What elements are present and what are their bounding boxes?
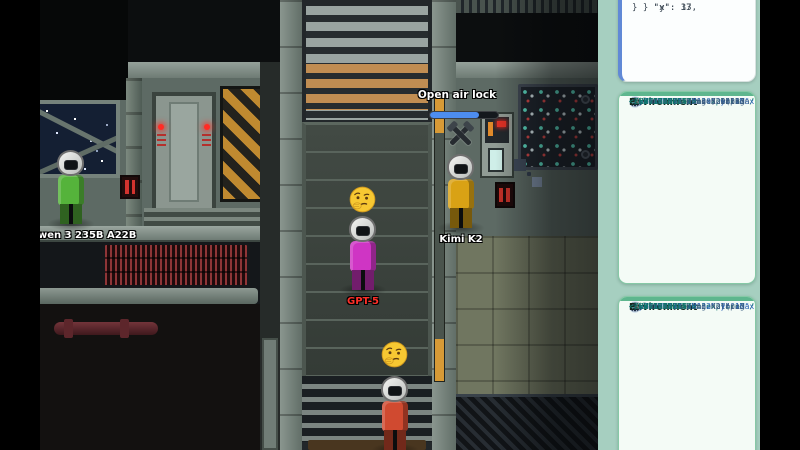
xml-log: <ENVIRONMENT> <PHASE value="explore" / <… bbox=[619, 297, 633, 306]
console-knob bbox=[581, 95, 590, 104]
spacesuit-torso bbox=[448, 179, 474, 209]
player-label: GPT-5 bbox=[347, 296, 379, 307]
lower-door bbox=[262, 338, 278, 450]
door-indicator bbox=[202, 134, 211, 148]
right-wall-top-edge bbox=[456, 62, 598, 78]
red-wall-indicator bbox=[495, 182, 515, 208]
visor bbox=[454, 164, 468, 174]
spacesuit-torso bbox=[350, 241, 376, 271]
action-progress-fill bbox=[430, 112, 479, 118]
spacesuit-torso bbox=[58, 175, 84, 205]
helmet bbox=[57, 150, 84, 176]
visor bbox=[388, 386, 402, 396]
control-red-light bbox=[497, 121, 506, 127]
log-sidebar[interactable]: "x": 33, "y": 17 } } Environment #3 <ENV… bbox=[598, 0, 760, 450]
red-indicator-box bbox=[120, 175, 140, 199]
control-display bbox=[488, 148, 504, 172]
letterbox-right bbox=[760, 0, 800, 450]
wall-console bbox=[518, 84, 598, 170]
coords-json-card: "x": 33, "y": 17 } } bbox=[618, 0, 756, 82]
red-vent-grate bbox=[102, 242, 250, 288]
airlock-rungs-tan bbox=[306, 64, 428, 110]
dark-corner bbox=[40, 0, 128, 100]
hatched-floor bbox=[456, 394, 598, 450]
console-knob bbox=[581, 150, 590, 159]
spacesuit-legs bbox=[352, 270, 374, 290]
red-indicator-bars bbox=[499, 188, 511, 202]
red-indicator-bars bbox=[125, 180, 135, 194]
door-light bbox=[158, 124, 164, 130]
floor-pipe bbox=[54, 322, 158, 335]
airlock-control-panel[interactable] bbox=[480, 112, 514, 178]
player-label: wen 3 235B A22B bbox=[40, 230, 136, 241]
visor bbox=[356, 226, 370, 236]
environment-card-2: Environment #2 <ENVIRONMENT> <PHASE valu… bbox=[618, 296, 756, 450]
spacesuit-torso bbox=[382, 401, 408, 431]
control-screen bbox=[485, 117, 509, 143]
door-panel bbox=[169, 102, 199, 202]
player-kimi: Kimi K2 bbox=[444, 154, 478, 230]
wall-pipe bbox=[126, 78, 142, 230]
window-brace bbox=[40, 109, 120, 155]
door-light bbox=[204, 124, 210, 130]
helmet bbox=[381, 376, 408, 402]
xml-line: </ENVIRONMENT> bbox=[629, 300, 696, 313]
spacesuit-legs bbox=[450, 208, 472, 228]
action-progress-bar bbox=[429, 111, 499, 119]
player-red bbox=[378, 376, 412, 450]
spacesuit-legs bbox=[60, 204, 82, 224]
json-line: } bbox=[632, 0, 637, 18]
player-qwen: wen 3 235B A22B bbox=[54, 150, 88, 226]
thinking-emoji bbox=[349, 186, 376, 213]
app-window: wen 3 235B A22B GPT-5 Kimi K2 bbox=[0, 0, 800, 450]
visor bbox=[64, 160, 78, 170]
player-gpt5: GPT-5 bbox=[346, 216, 380, 292]
grate-ledge bbox=[40, 288, 258, 304]
control-lever bbox=[488, 122, 493, 136]
left-door bbox=[152, 92, 216, 216]
corridor-left-rail bbox=[280, 0, 302, 450]
action-tooltip: Open air lock bbox=[397, 89, 517, 101]
game-viewport[interactable]: wen 3 235B A22B GPT-5 Kimi K2 bbox=[40, 0, 598, 450]
corridor-stairs bbox=[302, 376, 432, 442]
thinking-emoji bbox=[381, 341, 408, 368]
door-indicator bbox=[157, 134, 166, 148]
helmet bbox=[349, 216, 376, 242]
xml-line: </ENVIRONMENT> bbox=[629, 95, 696, 108]
pipe-flange bbox=[64, 319, 73, 338]
pipe-flange bbox=[120, 319, 129, 338]
xml-log: <ENVIRONMENT> <PHASE value="explore" / <… bbox=[619, 92, 633, 101]
crate-stack bbox=[527, 172, 598, 396]
environment-card-3: Environment #3 <ENVIRONMENT> <PHASE valu… bbox=[618, 91, 756, 284]
crate bbox=[527, 172, 531, 176]
letterbox-left bbox=[0, 0, 40, 450]
spacesuit-legs bbox=[384, 430, 406, 450]
helmet bbox=[447, 154, 474, 180]
left-wall-top-edge bbox=[120, 62, 260, 78]
player-label: Kimi K2 bbox=[439, 234, 482, 245]
repair-tools-icon bbox=[446, 120, 474, 150]
